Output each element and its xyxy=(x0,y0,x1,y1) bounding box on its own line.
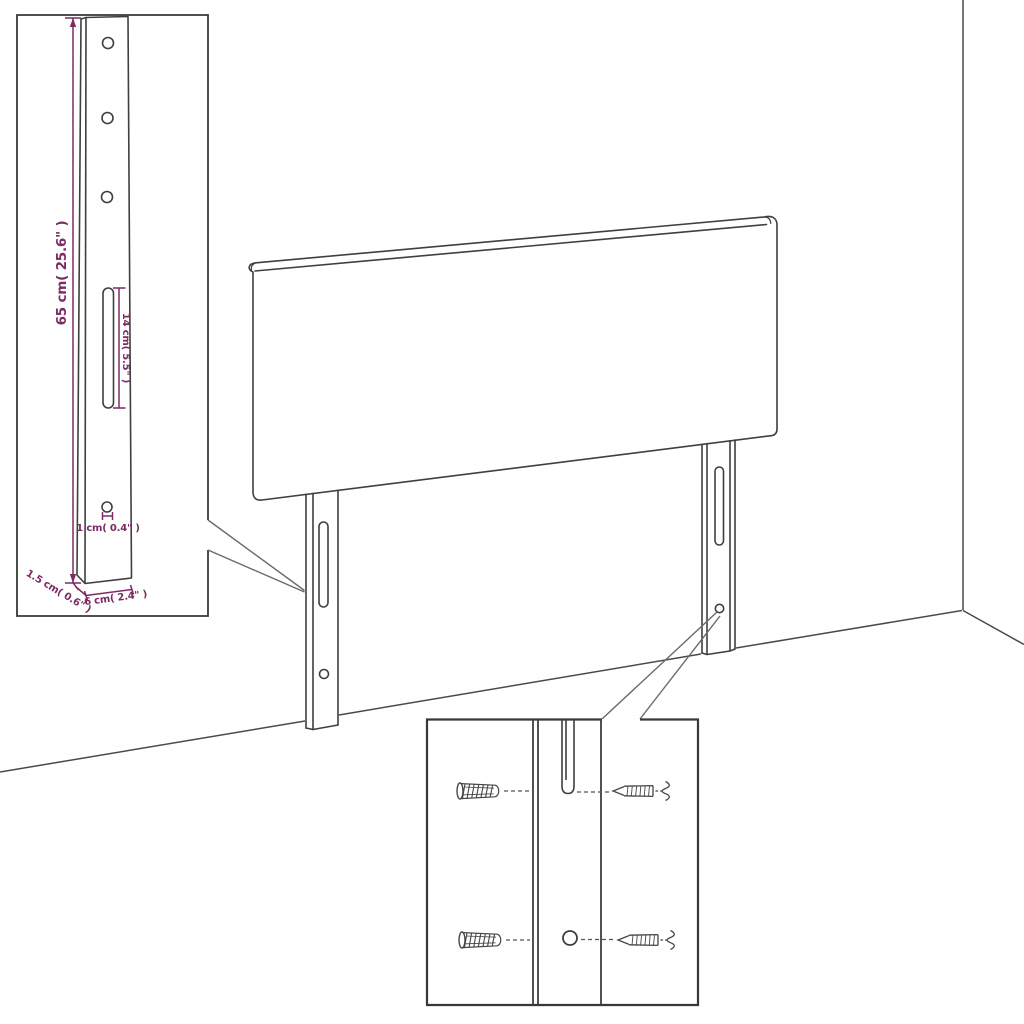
product-dimension-diagram: 65 cm( 25.6" ) 14 cm( 5.5" ) 1 cm( 0.4" … xyxy=(0,0,1024,1024)
inset-leg-front-edge xyxy=(85,18,86,584)
inset-leg-small-hole xyxy=(102,502,112,512)
headboard-panel xyxy=(249,216,777,500)
floor-line-right xyxy=(963,611,1024,645)
leg-detail-inset: 65 cm( 25.6" ) 14 cm( 5.5" ) 1 cm( 0.4" … xyxy=(17,15,208,616)
dimension-label-height: 65 cm( 25.6" ) xyxy=(54,221,70,326)
inset-leg-hole-1 xyxy=(103,38,114,49)
inset-leg-hole-3 xyxy=(102,192,113,203)
hardware-detail-inset xyxy=(427,719,698,1005)
left-leg-bottom-edge xyxy=(306,725,338,730)
inset-leg-hole-2 xyxy=(102,113,113,124)
left-leg-hole xyxy=(320,670,329,679)
headboard-drawing xyxy=(249,216,777,729)
dimension-label-slot: 14 cm( 5.5" ) xyxy=(120,313,131,383)
inset-leg-slot xyxy=(103,288,114,408)
diagram-canvas: 65 cm( 25.6" ) 14 cm( 5.5" ) 1 cm( 0.4" … xyxy=(0,0,1024,1024)
right-leg-slot xyxy=(715,467,724,545)
right-leg-hole xyxy=(715,604,723,612)
inset-strip-hole xyxy=(563,931,577,945)
dimension-label-hole: 1 cm( 0.4" ) xyxy=(76,523,139,534)
left-leg-slot xyxy=(319,522,328,607)
headboard-left-leg xyxy=(306,490,338,729)
callout-wedge-left xyxy=(208,520,305,592)
